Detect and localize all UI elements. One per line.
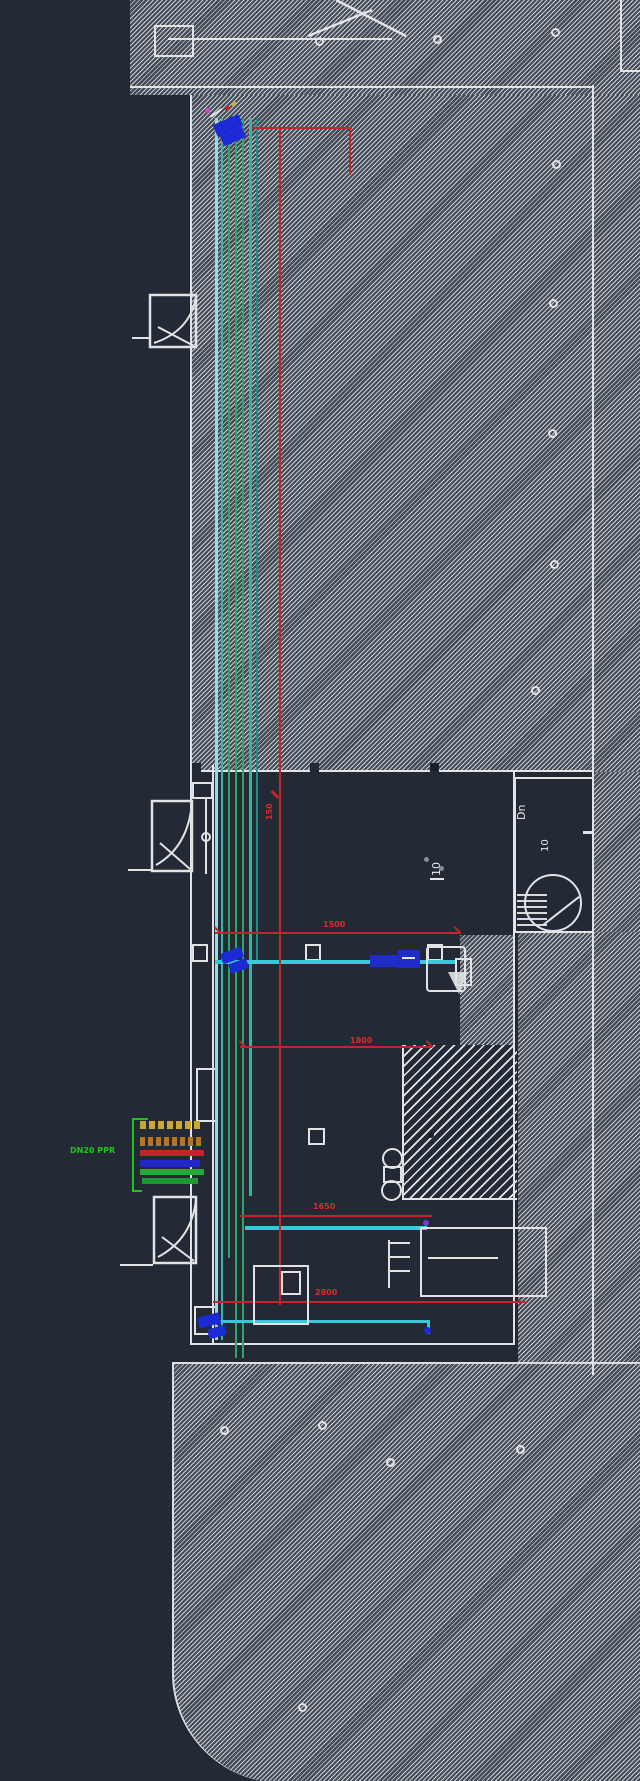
callout-bracket-tick xyxy=(132,1190,142,1192)
fixture-rail xyxy=(388,1240,390,1288)
stub-line xyxy=(120,1264,153,1266)
wall-tick xyxy=(192,763,201,772)
inner-wall-line xyxy=(212,765,214,1345)
edge-line-topright-h xyxy=(620,70,640,72)
hatch-dot xyxy=(298,1703,307,1712)
pipe-run-lower xyxy=(245,1226,427,1230)
pipe-callout-label: DN20 PPR xyxy=(70,1146,115,1155)
callout-bar-blue xyxy=(140,1160,200,1167)
equipment-blue-block xyxy=(398,950,420,968)
pipe-riser xyxy=(221,118,223,1340)
door-post xyxy=(308,1128,325,1145)
wall-notch xyxy=(192,782,213,799)
pipe-riser xyxy=(215,118,218,1340)
hatch-shaft-strip xyxy=(460,935,515,1047)
dim-line-top-h xyxy=(252,127,352,129)
dim-line-mid xyxy=(215,932,460,934)
callout-bar-green2 xyxy=(142,1178,198,1184)
hatch-right-mid xyxy=(518,932,640,1372)
dim-text-mid: 1500 xyxy=(323,921,345,929)
marker-dot-red xyxy=(225,106,229,110)
hatch-dot xyxy=(315,37,324,46)
equipment-highlight xyxy=(402,957,415,959)
pipe-run-bottom xyxy=(214,1320,430,1323)
hatch-dot xyxy=(552,160,561,169)
marker-dot-magenta xyxy=(205,108,210,113)
faint-dot xyxy=(424,857,429,862)
pipe-riser xyxy=(242,118,244,1358)
equipment-blue-block xyxy=(370,955,398,967)
hatch-dot-dark xyxy=(431,764,438,771)
hatch-dot xyxy=(433,35,442,44)
room-bottom-edge xyxy=(190,1343,515,1345)
pipe-riser xyxy=(228,118,230,1258)
fixture-stub xyxy=(388,1256,410,1258)
dim-text-lower: 1650 xyxy=(313,1203,335,1211)
stair-circle xyxy=(524,874,582,932)
cross-marker xyxy=(300,0,415,40)
callout-bar-green xyxy=(140,1169,204,1175)
stair-wall-tick xyxy=(583,831,593,834)
hatch-dot xyxy=(318,1421,327,1430)
door-post xyxy=(192,944,208,962)
dim-text-bottom: 2800 xyxy=(315,1289,337,1297)
marker-dot-yellow xyxy=(232,102,236,106)
machine-large-inner xyxy=(428,1257,498,1259)
dim-text-vertical: 150 xyxy=(266,803,274,820)
pipe-riser xyxy=(235,118,237,1358)
hatch-shaft-block xyxy=(402,1045,517,1200)
wall-shaft-box xyxy=(196,1068,217,1122)
stub-line xyxy=(128,869,152,871)
wall-tick xyxy=(310,763,319,772)
door-symbol-1 xyxy=(148,293,200,349)
dim-line-lower xyxy=(240,1215,432,1217)
hatch-dot xyxy=(551,28,560,37)
pipe-run-mid xyxy=(215,960,457,964)
panel-divider-line xyxy=(592,85,594,1375)
hatch-dot xyxy=(516,1445,525,1454)
door-symbol-2-dot xyxy=(201,832,211,842)
dim-line-stub-v xyxy=(349,127,351,175)
hatch-dot xyxy=(531,686,540,695)
callout-bracket-v xyxy=(132,1118,134,1192)
hatch-dot xyxy=(549,299,558,308)
dim-line-shaft xyxy=(240,1046,432,1048)
shaft-dot xyxy=(428,1132,434,1138)
callout-row-yellow2 xyxy=(140,1137,204,1146)
pipe-riser xyxy=(249,118,252,1196)
riser-tick xyxy=(430,878,444,880)
machine-large xyxy=(420,1227,547,1297)
hatch-bottom-band xyxy=(172,1362,640,1781)
stair-count-label: 10 xyxy=(541,839,551,852)
callout-row-yellow xyxy=(140,1121,200,1129)
pipe-node-dot xyxy=(424,1327,431,1334)
door-post xyxy=(305,944,321,961)
left-wall-line xyxy=(190,95,192,1345)
callout-bracket-tick xyxy=(132,1118,148,1120)
dim-line-main-v xyxy=(279,127,281,1305)
pipe-node-dot xyxy=(214,1318,221,1325)
machine-small-inner xyxy=(281,1271,301,1295)
door-symbol-2 xyxy=(150,799,202,873)
fixture-stub xyxy=(388,1270,410,1272)
slab-joint-line xyxy=(130,86,592,88)
opening-marker-box xyxy=(154,25,194,57)
cad-drawing-canvas[interactable]: Dn 10 10 150 1500 1800 1650 2800 xyxy=(0,0,640,1781)
pump-circle xyxy=(381,1180,402,1201)
dim-text-shaft: 1800 xyxy=(350,1037,372,1045)
hatch-dot xyxy=(550,560,559,569)
hatch-dot xyxy=(220,1426,229,1435)
hatch-dot xyxy=(548,429,557,438)
pipe-node-dot-purple xyxy=(423,1220,429,1226)
door-symbol-3 xyxy=(152,1195,200,1265)
edge-line-topright-v xyxy=(620,0,622,72)
hatch-dot xyxy=(386,1458,395,1467)
callout-bar-red xyxy=(140,1150,204,1156)
stair-direction-label: Dn xyxy=(517,805,527,820)
fixture-stub xyxy=(388,1242,410,1244)
pipe-riser xyxy=(256,118,258,964)
faint-dot xyxy=(439,866,444,871)
